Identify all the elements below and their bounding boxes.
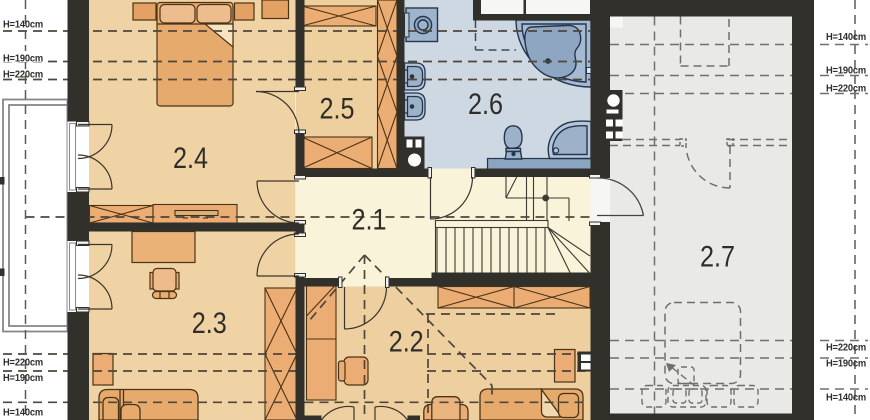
svg-text:H=140cm: H=140cm [826,31,866,43]
svg-text:H=140cm: H=140cm [826,392,866,404]
svg-text:2.5: 2.5 [320,93,355,126]
svg-text:2.1: 2.1 [352,204,387,237]
svg-text:H=220cm: H=220cm [3,357,43,369]
svg-text:H=140cm: H=140cm [3,19,43,31]
svg-text:H=140cm: H=140cm [3,407,43,419]
svg-text:H=190cm: H=190cm [826,65,866,77]
svg-text:2.2: 2.2 [389,326,424,359]
svg-text:2.4: 2.4 [173,142,208,175]
svg-text:H=220cm: H=220cm [3,69,43,81]
svg-text:H=190cm: H=190cm [3,53,43,65]
svg-text:H=190cm: H=190cm [826,358,866,370]
svg-text:2.7: 2.7 [700,241,735,274]
svg-text:H=220cm: H=220cm [826,342,866,354]
svg-text:H=220cm: H=220cm [826,83,866,95]
svg-text:2.6: 2.6 [468,88,503,121]
svg-text:2.3: 2.3 [192,307,227,340]
svg-text:H=190cm: H=190cm [3,372,43,384]
